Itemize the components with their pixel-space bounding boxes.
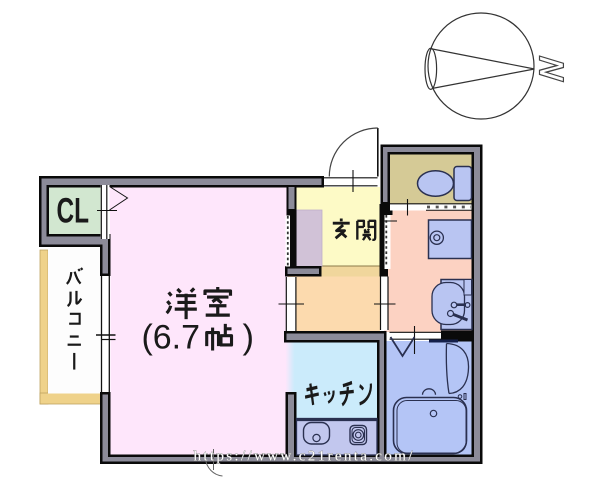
svg-text:https://www.c21renta.com/: https://www.c21renta.com/ bbox=[194, 448, 414, 465]
svg-text:): ) bbox=[243, 319, 255, 357]
svg-text:(6.7: (6.7 bbox=[142, 319, 201, 357]
svg-text:CL: CL bbox=[57, 192, 90, 231]
